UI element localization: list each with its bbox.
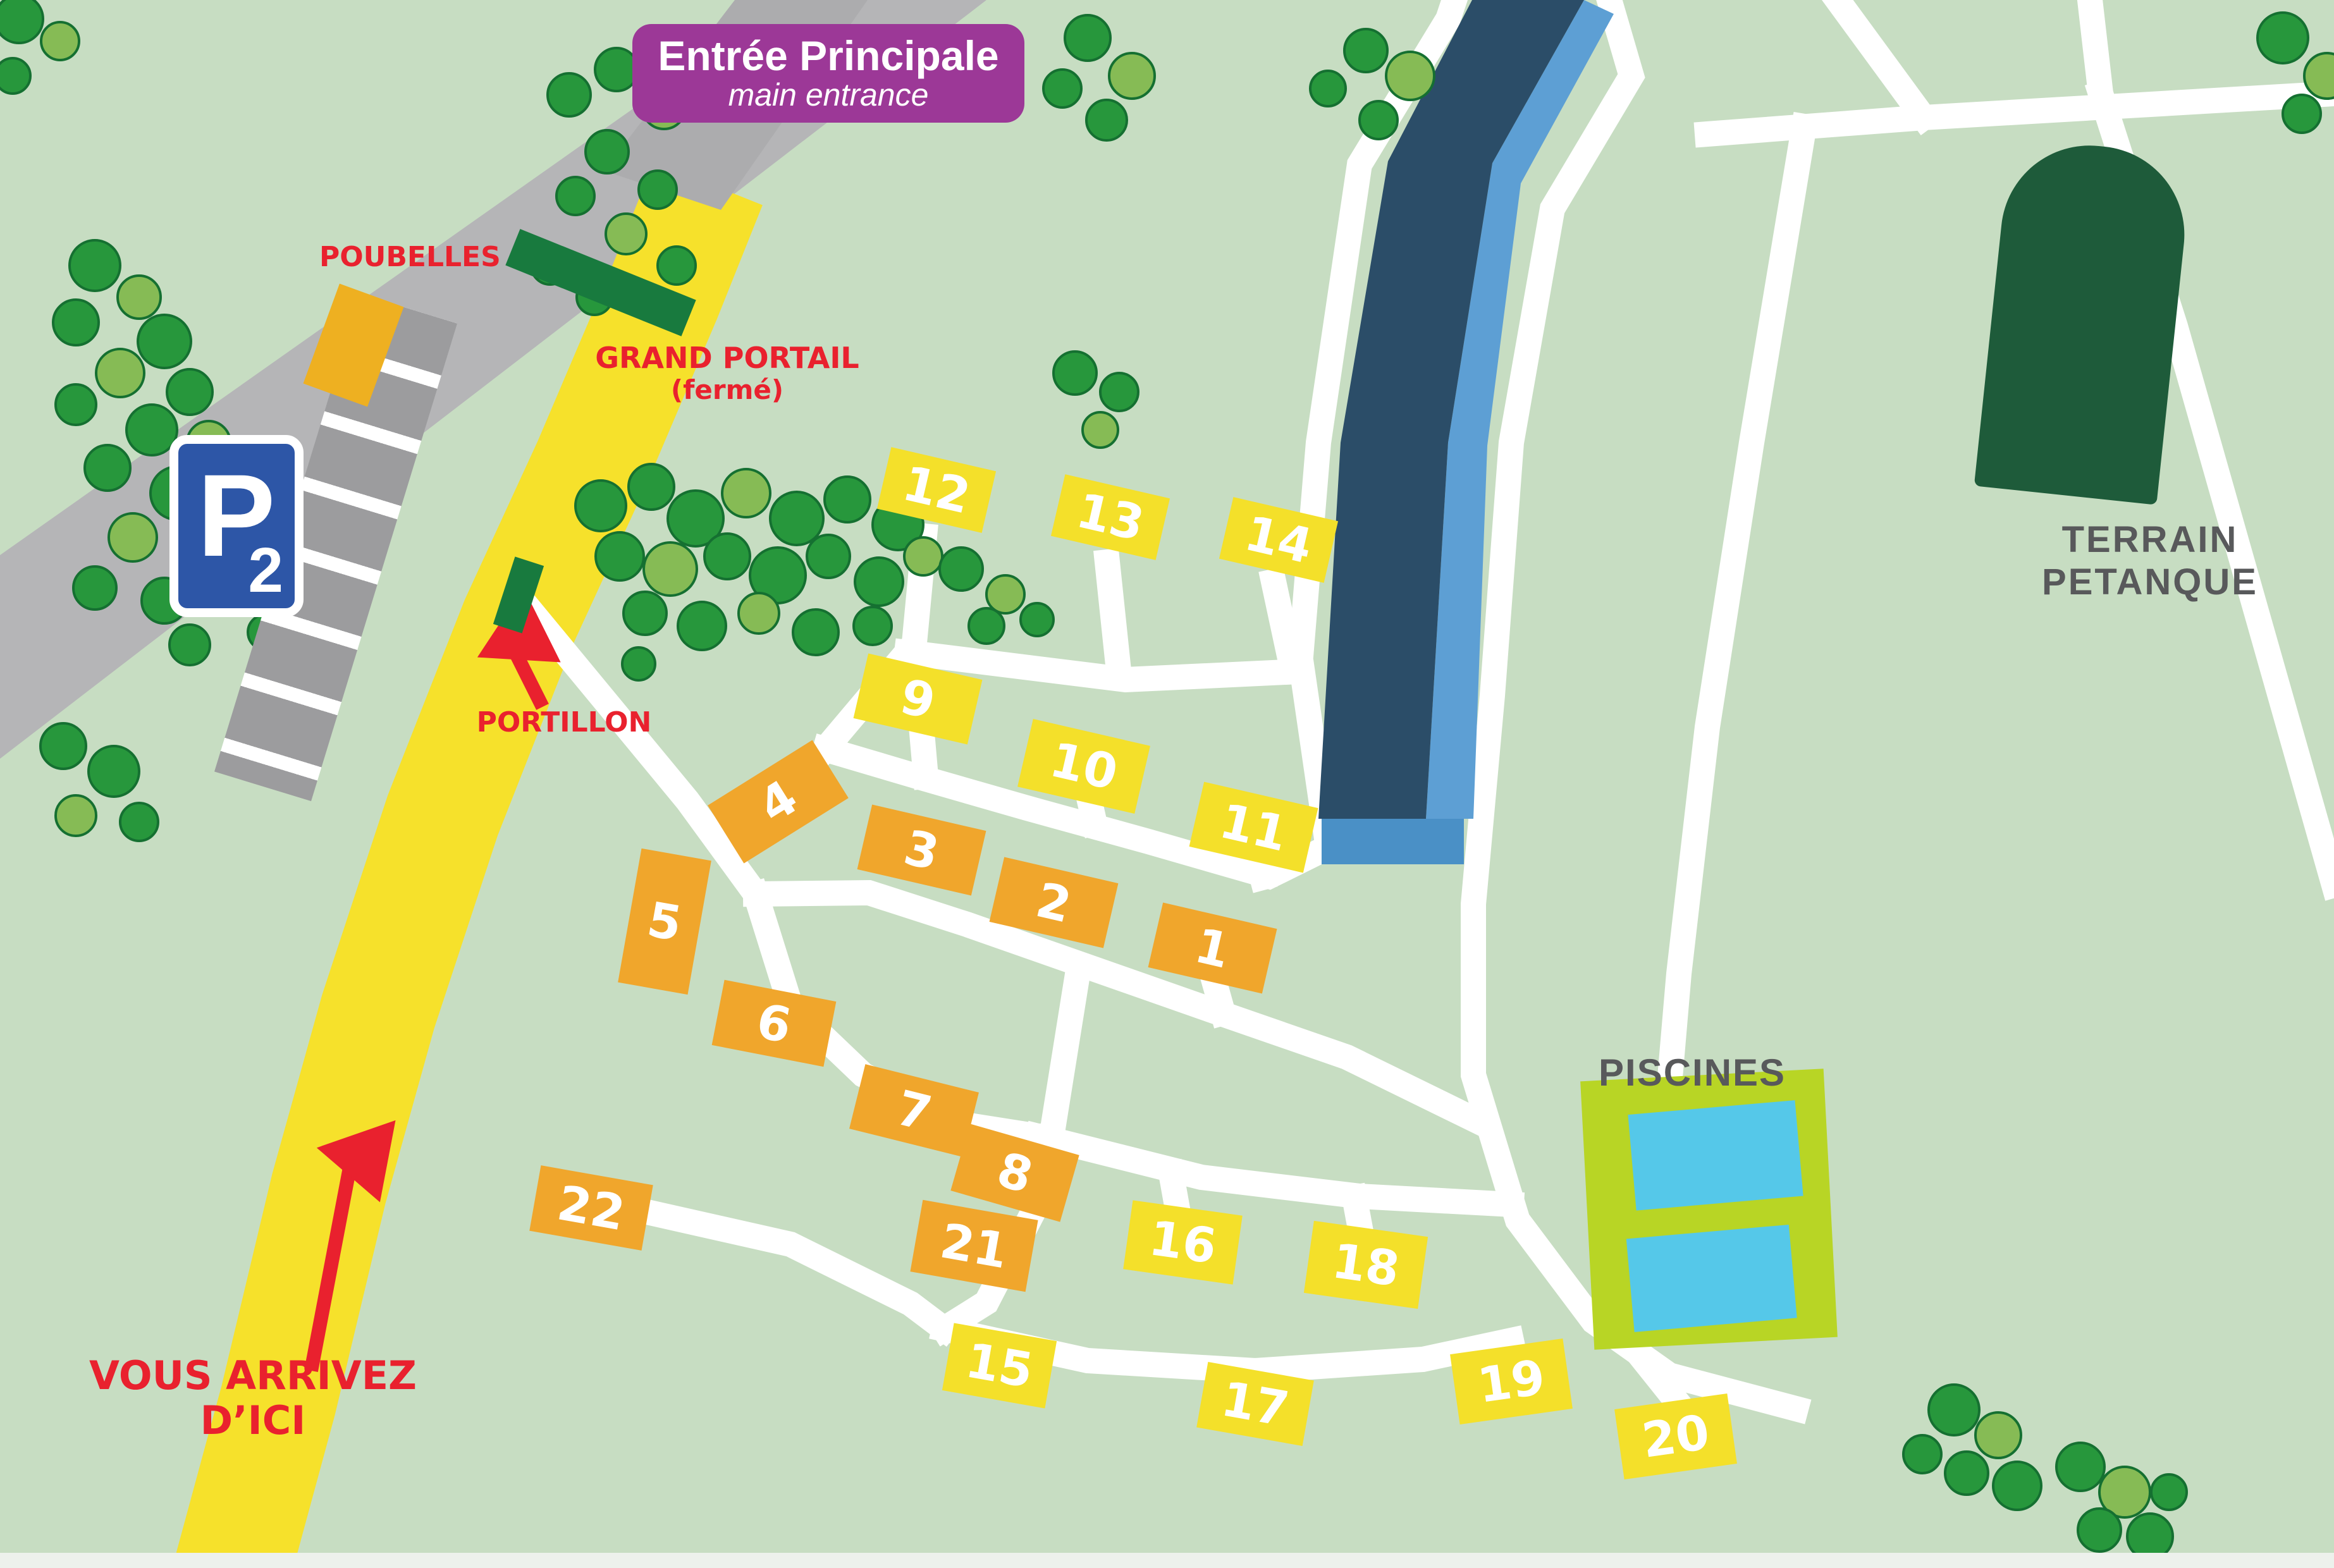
tree-icon bbox=[1043, 70, 1081, 107]
plot-number: 19 bbox=[1475, 1353, 1547, 1410]
tree-icon bbox=[1065, 15, 1110, 61]
tree-icon bbox=[793, 609, 838, 655]
plot-number: 22 bbox=[554, 1178, 628, 1237]
tree-icon bbox=[70, 240, 120, 291]
tree-icon bbox=[89, 746, 139, 797]
tree-icon bbox=[0, 58, 30, 94]
tree-icon bbox=[2283, 95, 2321, 133]
parking-p2-sign: P 2 bbox=[169, 435, 304, 617]
tree-icon bbox=[56, 384, 96, 425]
tree-icon bbox=[40, 723, 86, 769]
plot-number: 4 bbox=[751, 773, 804, 831]
tree-icon bbox=[2056, 1443, 2104, 1491]
tree-icon bbox=[1083, 412, 1118, 448]
tree-icon bbox=[622, 647, 655, 680]
grand-portail-label: GRAND PORTAIL (fermé) bbox=[595, 341, 859, 405]
tree-icon bbox=[138, 315, 191, 368]
terrain-petanque-label: TERRAIN PETANQUE bbox=[2042, 518, 2258, 603]
tree-icon bbox=[595, 48, 638, 91]
tree-icon bbox=[73, 567, 116, 609]
tree-icon bbox=[629, 464, 674, 510]
parking-sign-number: 2 bbox=[248, 534, 283, 607]
tree-icon bbox=[1086, 100, 1127, 140]
tree-icon bbox=[940, 548, 983, 591]
plot-number: 8 bbox=[992, 1145, 1038, 1201]
piscines-label: PISCINES bbox=[1599, 1051, 1786, 1094]
tree-icon bbox=[969, 608, 1004, 644]
tree-icon bbox=[606, 214, 646, 254]
tree-icon bbox=[596, 532, 644, 580]
plot-number: 14 bbox=[1241, 509, 1317, 571]
plot-number: 3 bbox=[900, 823, 943, 877]
tree-icon bbox=[96, 349, 144, 397]
tree-icon bbox=[825, 477, 870, 522]
map-edge-strip bbox=[0, 1553, 2334, 1568]
tree-icon bbox=[1344, 29, 1387, 72]
tree-icon bbox=[639, 171, 677, 209]
pool-2 bbox=[1626, 1225, 1797, 1332]
pool-1 bbox=[1628, 1100, 1803, 1211]
tree-icon bbox=[85, 445, 130, 491]
campsite-map: P 2 Entrée Principale main entrance POUB… bbox=[0, 0, 2334, 1568]
tree-icon bbox=[704, 534, 750, 579]
tree-icon bbox=[739, 593, 779, 634]
tree-icon bbox=[548, 73, 591, 116]
plot-number: 12 bbox=[899, 459, 974, 521]
tree-icon bbox=[658, 247, 696, 285]
entrance-banner-title: Entrée Principale bbox=[658, 34, 998, 78]
tree-icon bbox=[41, 22, 79, 60]
tree-icon bbox=[109, 513, 157, 561]
tree-icon bbox=[904, 537, 942, 575]
plot-number: 18 bbox=[1329, 1236, 1402, 1293]
plot-number: 21 bbox=[937, 1216, 1010, 1275]
tree-icon bbox=[556, 177, 594, 215]
tree-icon bbox=[1975, 1412, 2021, 1458]
tree-icon bbox=[1109, 53, 1155, 99]
tree-icon bbox=[1945, 1452, 1988, 1495]
map-base-layer bbox=[0, 0, 2334, 1568]
plot-number: 6 bbox=[753, 996, 795, 1050]
tree-icon bbox=[575, 481, 626, 531]
entrance-banner: Entrée Principale main entrance bbox=[632, 24, 1024, 123]
tree-icon bbox=[623, 592, 666, 635]
plot-18: 18 bbox=[1304, 1220, 1428, 1308]
tree-icon bbox=[986, 575, 1024, 613]
tree-icon bbox=[120, 803, 158, 841]
plot-number: 20 bbox=[1639, 1408, 1712, 1465]
tree-icon bbox=[855, 558, 903, 606]
pool-base-rect bbox=[1322, 819, 1464, 864]
plot-number: 13 bbox=[1072, 486, 1148, 548]
plot-number: 5 bbox=[644, 895, 685, 948]
plot-number: 7 bbox=[892, 1083, 936, 1138]
tree-icon bbox=[1929, 1385, 1979, 1435]
tree-icon bbox=[854, 607, 892, 645]
tree-icon bbox=[1386, 52, 1434, 100]
tree-icon bbox=[722, 469, 770, 517]
tree-icon bbox=[770, 492, 823, 545]
plot-number: 11 bbox=[1215, 796, 1291, 858]
plot-number: 16 bbox=[1146, 1214, 1219, 1271]
piscines-area bbox=[1580, 1069, 1838, 1350]
tree-icon bbox=[0, 0, 43, 43]
plot-number: 15 bbox=[962, 1336, 1036, 1395]
plot-number: 1 bbox=[1191, 921, 1234, 975]
tree-icon bbox=[56, 795, 96, 836]
tree-icon bbox=[1053, 352, 1096, 395]
tree-icon bbox=[678, 602, 726, 650]
tree-icon bbox=[1100, 373, 1138, 411]
plot-number: 10 bbox=[1046, 735, 1122, 797]
tree-icon bbox=[1993, 1462, 2041, 1510]
tree-icon bbox=[1903, 1435, 1941, 1473]
arrival-label: VOUS ARRIVEZ D’ICI bbox=[89, 1353, 417, 1443]
plot-number: 9 bbox=[896, 671, 940, 726]
tree-icon bbox=[644, 542, 697, 596]
tree-icon bbox=[118, 276, 161, 319]
tree-icon bbox=[1021, 603, 1053, 636]
tree-icon bbox=[53, 300, 99, 345]
tree-icon bbox=[807, 535, 850, 578]
tree-icon bbox=[2078, 1509, 2121, 1552]
tree-icon bbox=[169, 625, 210, 665]
tree-icon bbox=[2257, 13, 2308, 63]
plot-number: 2 bbox=[1032, 875, 1076, 929]
entrance-banner-subtitle: main entrance bbox=[728, 78, 929, 113]
tree-icon bbox=[1360, 101, 1397, 139]
plot-number: 17 bbox=[1218, 1374, 1292, 1433]
tree-icon bbox=[1310, 71, 1346, 106]
portillon-label: PORTILLON bbox=[477, 707, 652, 739]
tree-icon bbox=[167, 369, 212, 415]
tree-icon bbox=[2151, 1474, 2187, 1510]
tree-icon bbox=[586, 130, 629, 173]
poubelles-label: POUBELLES bbox=[319, 242, 501, 274]
